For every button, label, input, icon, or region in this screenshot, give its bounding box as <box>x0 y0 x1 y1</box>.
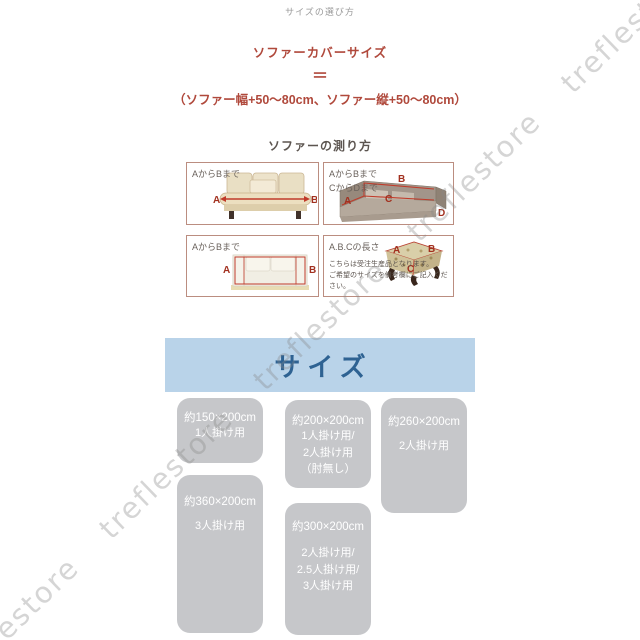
size-banner: サイズ <box>165 338 475 392</box>
size-card-300x200: 約300×200cm 2人掛け用/ 2.5人掛け用/ 3人掛け用 <box>285 503 371 635</box>
equals-sign: ＝ <box>0 62 640 86</box>
mark-a: A <box>344 196 351 207</box>
size-usage: （肘無し） <box>285 461 371 478</box>
mark-b: B <box>309 265 316 276</box>
mark-a: A <box>213 195 220 206</box>
mark-c: C <box>385 194 392 205</box>
measure-box-straight-sofa: AからBまで A B <box>186 162 319 225</box>
size-dimension: 約260×200cm <box>381 413 467 429</box>
measure-box-ottoman: A.B.Cの長さ A B C こちらは受注生産品となります。 <box>323 235 454 297</box>
mark-b: B <box>428 244 435 255</box>
size-dimension: 約300×200cm <box>285 518 371 534</box>
measure-box-white-sofa: AからBまで A B <box>186 235 319 297</box>
size-dimension: 約150×200cm <box>177 409 263 425</box>
watermark-text: treflestore <box>0 550 86 640</box>
size-usage: 1人掛け用 <box>177 425 263 442</box>
size-banner-label: サイズ <box>165 338 475 392</box>
measure-grid: AからBまで A B AからBまで CからDまで <box>186 162 454 297</box>
size-usage: 2人掛け用/ <box>285 545 371 562</box>
measure-range-label: AからBまで <box>192 167 240 181</box>
size-usage: 2.5人掛け用/ <box>285 562 371 579</box>
size-formula: （ソファー幅+50～80cm、ソファー縦+50～80cm） <box>0 89 640 108</box>
mark-d: D <box>438 208 445 219</box>
measure-range-label: AからBまで <box>192 240 240 254</box>
mark-a: A <box>223 265 230 276</box>
measure-range-label: AからBまで CからDまで <box>329 167 378 196</box>
size-card-150x200: 約150×200cm 1人掛け用 <box>177 398 263 463</box>
mark-b: B <box>398 174 405 185</box>
size-grid: 約150×200cm 1人掛け用 約200×200cm 1人掛け用/ 2人掛け用… <box>177 398 467 640</box>
size-card-200x200: 約200×200cm 1人掛け用/ 2人掛け用 （肘無し） <box>285 400 371 488</box>
product-size-guide: treflestore treflestore treflestore tref… <box>0 0 640 640</box>
measure-heading: ソファーの測り方 <box>0 137 640 154</box>
measure-box-corner-sofa: AからBまで CからDまで A B C D <box>323 162 454 225</box>
size-usage: 2人掛け用 <box>381 438 467 455</box>
size-usage: 3人掛け用 <box>177 518 263 535</box>
measure-range-label: A.B.Cの長さ <box>329 240 380 254</box>
page-title: サイズの選び方 <box>0 5 640 18</box>
size-usage: 1人掛け用/ <box>285 428 371 445</box>
mark-b: B <box>311 195 317 206</box>
custom-order-note: こちらは受注生産品となります。 ご希望のサイズを備考欄にご記入ください。 <box>329 260 449 293</box>
mark-a: A <box>393 245 400 256</box>
size-usage: 2人掛け用 <box>285 445 371 462</box>
cover-size-heading: ソファーカバーサイズ <box>0 42 640 61</box>
size-card-260x200: 約260×200cm 2人掛け用 <box>381 398 467 513</box>
size-usage: 3人掛け用 <box>285 578 371 595</box>
size-card-360x200: 約360×200cm 3人掛け用 <box>177 475 263 633</box>
size-dimension: 約200×200cm <box>285 412 371 428</box>
size-dimension: 約360×200cm <box>177 493 263 509</box>
